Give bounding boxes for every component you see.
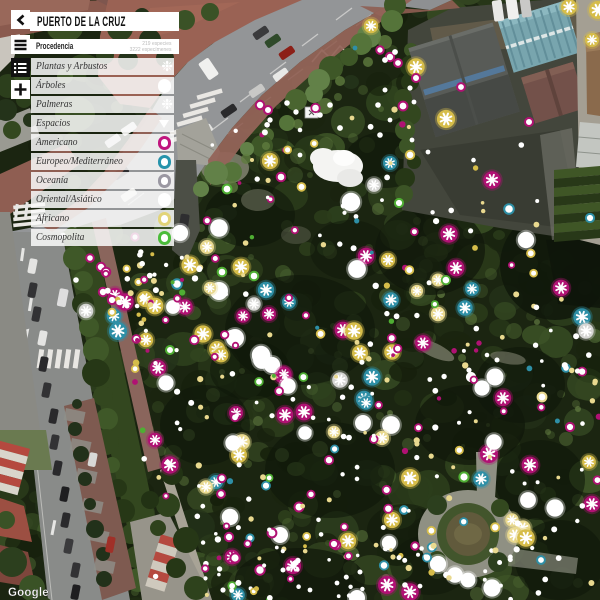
svg-text:Google: Google xyxy=(8,587,49,599)
